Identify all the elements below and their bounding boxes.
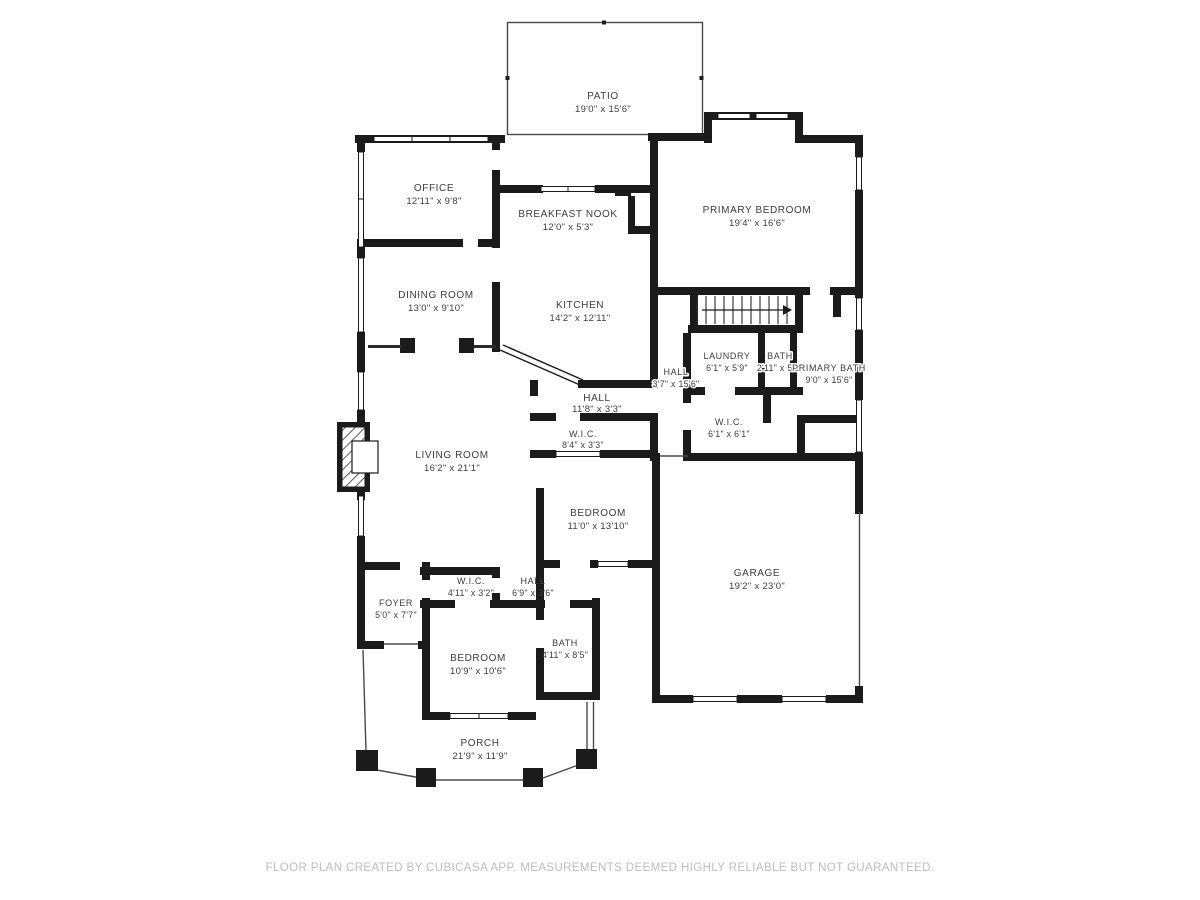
- svg-text:PATIO: PATIO: [587, 91, 619, 102]
- svg-text:GARAGE: GARAGE: [734, 568, 780, 579]
- svg-text:HALL: HALL: [583, 393, 610, 404]
- room-label-foyer: FOYER 5'0" x 7'7": [375, 598, 417, 620]
- room-label-primary-bedroom: PRIMARY BEDROOM 19'4" x 16'6": [703, 205, 812, 229]
- svg-text:19'4" x 16'6": 19'4" x 16'6": [729, 218, 785, 229]
- room-label-bedroom-mid: BEDROOM 11'0" x 13'10": [568, 508, 629, 532]
- svg-text:21'9" x 11'9": 21'9" x 11'9": [452, 751, 507, 762]
- svg-text:6'1" x 5'9": 6'1" x 5'9": [706, 363, 748, 373]
- svg-text:BATH: BATH: [552, 638, 578, 648]
- room-label-laundry: LAUNDRY 6'1" x 5'9": [703, 351, 750, 373]
- svg-text:4'11" x 8'5": 4'11" x 8'5": [542, 650, 588, 660]
- svg-text:BREAKFAST NOOK: BREAKFAST NOOK: [518, 209, 617, 220]
- svg-text:PRIMARY BATH: PRIMARY BATH: [792, 363, 866, 373]
- room-label-porch: PORCH 21'9" x 11'9": [452, 738, 507, 762]
- svg-text:8'4" x 3'3": 8'4" x 3'3": [562, 440, 604, 450]
- svg-text:FOYER: FOYER: [379, 598, 413, 608]
- room-label-primary-bath: PRIMARY BATH 9'0" x 15'6": [792, 363, 866, 385]
- room-label-kitchen: KITCHEN 14'2" x 12'11": [550, 300, 611, 324]
- svg-text:4'11" x 3'2": 4'11" x 3'2": [448, 588, 494, 598]
- room-label-living-room: LIVING ROOM 16'2" x 21'1": [415, 450, 488, 474]
- svg-text:OFFICE: OFFICE: [414, 183, 454, 194]
- disclaimer-text: FLOOR PLAN CREATED BY CUBICASA APP. MEAS…: [266, 862, 935, 874]
- room-label-breakfast-nook: BREAKFAST NOOK 12'0" x 5'3": [518, 209, 617, 233]
- svg-text:16'2" x 21'1": 16'2" x 21'1": [424, 463, 480, 474]
- floor-plan-page: PATIO 19'0" x 15'6" OFFICE 12'11" x 9'8"…: [0, 0, 1200, 900]
- svg-text:BATH: BATH: [767, 351, 793, 361]
- svg-text:6'1" x 6'1": 6'1" x 6'1": [708, 429, 750, 439]
- fireplace: [337, 422, 378, 492]
- room-label-garage: GARAGE 19'2" x 23'0": [729, 568, 785, 592]
- room-label-wic-primary: W.I.C. 6'1" x 6'1": [708, 417, 750, 439]
- room-label-hall-small: HALL 6'9" x 3'6": [512, 576, 554, 598]
- svg-text:PRIMARY BEDROOM: PRIMARY BEDROOM: [703, 205, 812, 216]
- svg-text:BEDROOM: BEDROOM: [570, 508, 626, 519]
- room-label-wic-mid: W.I.C. 8'4" x 3'3": [562, 429, 604, 450]
- room-label-wic-small: W.I.C. 4'11" x 3'2": [448, 576, 494, 598]
- svg-text:14'2" x 12'11": 14'2" x 12'11": [550, 313, 611, 324]
- svg-text:HALL: HALL: [521, 576, 546, 586]
- svg-text:HALL: HALL: [664, 367, 689, 377]
- room-label-bath-bottom: BATH 4'11" x 8'5": [542, 638, 588, 660]
- floor-plan-canvas: PATIO 19'0" x 15'6" OFFICE 12'11" x 9'8"…: [0, 0, 1200, 900]
- svg-text:19'0" x 15'6": 19'0" x 15'6": [575, 104, 631, 115]
- svg-text:5'0" x 7'7": 5'0" x 7'7": [375, 610, 417, 620]
- svg-text:W.I.C.: W.I.C.: [457, 576, 485, 586]
- svg-text:9'0" x 15'6": 9'0" x 15'6": [806, 375, 853, 385]
- svg-text:10'9" x 10'6": 10'9" x 10'6": [450, 666, 506, 677]
- svg-text:12'11" x 9'8": 12'11" x 9'8": [406, 196, 461, 207]
- svg-text:3'7" x 15'6": 3'7" x 15'6": [653, 379, 700, 389]
- svg-text:KITCHEN: KITCHEN: [556, 300, 604, 311]
- svg-text:12'0" x 5'3": 12'0" x 5'3": [543, 222, 593, 233]
- room-label-office: OFFICE 12'11" x 9'8": [406, 183, 461, 207]
- room-label-hall-upper: HALL 3'7" x 15'6": [653, 367, 700, 389]
- kitchen-diagonal-wall: [500, 345, 583, 385]
- stairs: [697, 296, 792, 324]
- room-label-patio: PATIO 19'0" x 15'6": [575, 91, 631, 115]
- svg-text:11'8" x 3'3": 11'8" x 3'3": [572, 404, 622, 415]
- svg-text:13'0" x 9'10": 13'0" x 9'10": [408, 303, 464, 314]
- svg-text:LIVING ROOM: LIVING ROOM: [415, 450, 488, 461]
- svg-text:W.I.C.: W.I.C.: [715, 417, 743, 427]
- svg-text:DINING ROOM: DINING ROOM: [398, 290, 474, 301]
- room-label-bedroom-bottom: BEDROOM 10'9" x 10'6": [450, 653, 506, 677]
- patio-outline: [506, 21, 704, 135]
- room-label-hall-mid: HALL 11'8" x 3'3": [572, 393, 622, 415]
- svg-text:W.I.C.: W.I.C.: [569, 429, 597, 439]
- svg-text:6'9" x 3'6": 6'9" x 3'6": [512, 588, 554, 598]
- svg-text:19'2" x 23'0": 19'2" x 23'0": [729, 581, 785, 592]
- half-wall: [368, 345, 496, 348]
- room-label-dining-room: DINING ROOM 13'0" x 9'10": [398, 290, 474, 314]
- svg-text:LAUNDRY: LAUNDRY: [703, 351, 750, 361]
- svg-text:11'0" x 13'10": 11'0" x 13'10": [568, 521, 629, 532]
- svg-text:PORCH: PORCH: [460, 738, 499, 749]
- svg-text:BEDROOM: BEDROOM: [450, 653, 506, 664]
